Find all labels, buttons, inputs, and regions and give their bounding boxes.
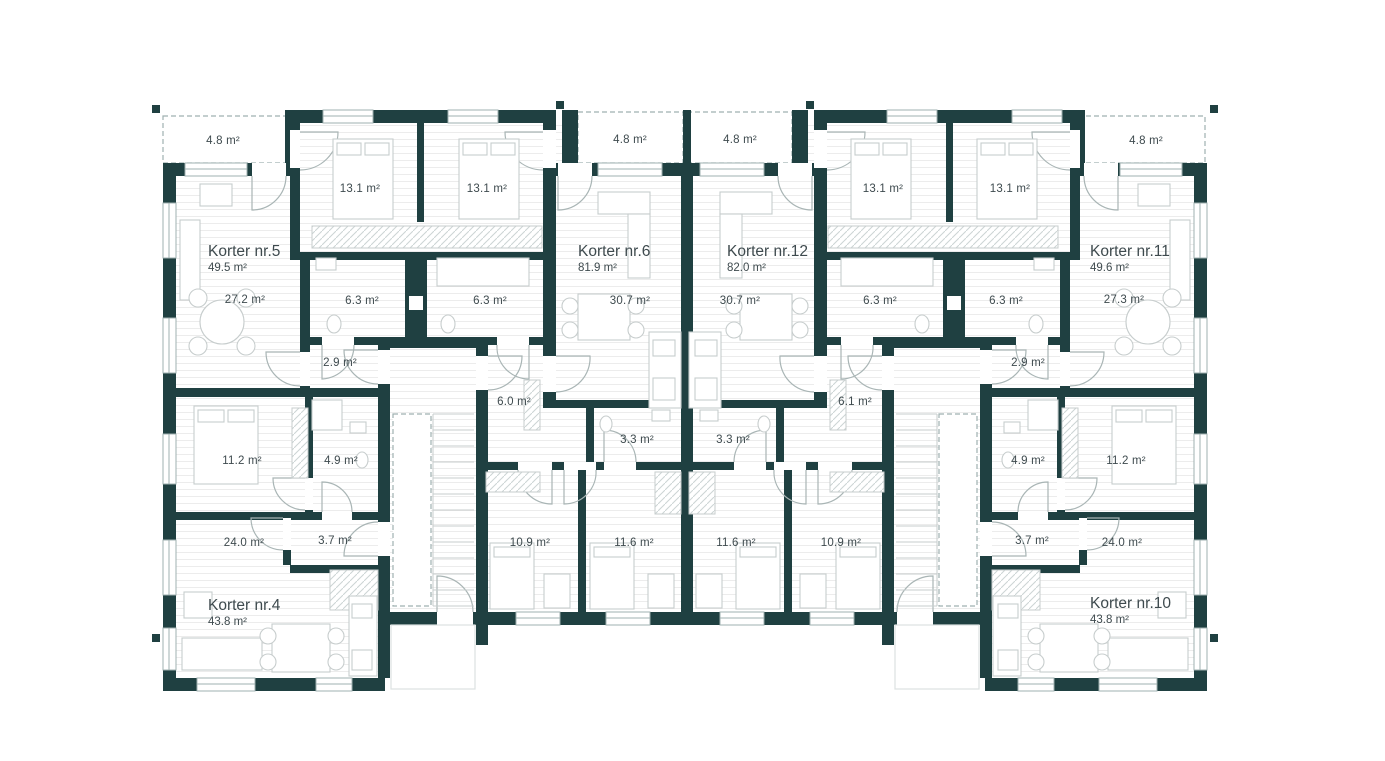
room-area-label: 2.9 m²	[1011, 357, 1045, 369]
apartment-area: 81.9 m²	[578, 261, 650, 275]
entrance-porch-left	[391, 625, 475, 689]
stair-landing-left	[393, 414, 431, 606]
apartment-area: 49.5 m²	[208, 261, 280, 275]
apartment-name: Korter nr.11	[1090, 243, 1170, 261]
room-area-label: 11.6 m²	[716, 537, 756, 549]
room-area-label: 30.7 m²	[720, 295, 760, 307]
entrance-porch-right	[895, 625, 979, 689]
room-area-label: 10.9 m²	[821, 537, 861, 549]
room-area-label: 11.2 m²	[1106, 455, 1146, 467]
room-area-label: 4.8 m²	[613, 134, 647, 146]
room-area-label: 2.9 m²	[323, 357, 357, 369]
apartment-area: 82.0 m²	[727, 261, 808, 275]
room-area-label: 24.0 m²	[1102, 537, 1142, 549]
apartment-label-k4: Korter nr.4 43.8 m²	[208, 597, 280, 629]
apartment-label-k11: Korter nr.11 49.6 m²	[1090, 243, 1170, 275]
room-area-label: 6.1 m²	[838, 396, 872, 408]
apartment-label-k10: Korter nr.10 43.8 m²	[1090, 595, 1171, 627]
room-area-label: 13.1 m²	[340, 183, 380, 195]
room-area-label: 6.0 m²	[497, 396, 531, 408]
apartment-name: Korter nr.4	[208, 597, 280, 615]
room-area-label: 4.8 m²	[1129, 135, 1163, 147]
apartment-name: Korter nr.6	[578, 243, 650, 261]
room-area-label: 6.3 m²	[863, 295, 897, 307]
room-area-label: 13.1 m²	[990, 183, 1030, 195]
room-area-label: 3.7 m²	[1015, 535, 1049, 547]
room-area-label: 6.3 m²	[989, 295, 1023, 307]
room-area-label: 11.6 m²	[614, 537, 654, 549]
room-area-label: 4.8 m²	[723, 134, 757, 146]
room-area-label: 4.9 m²	[324, 455, 358, 467]
apartment-name: Korter nr.10	[1090, 595, 1171, 613]
room-area-label: 3.3 m²	[620, 434, 654, 446]
room-area-label: 13.1 m²	[863, 183, 903, 195]
stair-landing-right	[939, 414, 977, 606]
room-area-label: 3.3 m²	[716, 434, 750, 446]
apartment-name: Korter nr.5	[208, 243, 280, 261]
room-area-label: 4.9 m²	[1011, 455, 1045, 467]
apartment-area: 49.6 m²	[1090, 261, 1170, 275]
room-area-label: 3.7 m²	[318, 535, 352, 547]
room-area-label: 27.2 m²	[225, 294, 265, 306]
room-area-label: 10.9 m²	[510, 537, 550, 549]
apartment-name: Korter nr.12	[727, 243, 808, 261]
room-area-label: 27.3 m²	[1104, 294, 1144, 306]
room-area-label: 11.2 m²	[222, 455, 262, 467]
room-area-label: 30.7 m²	[610, 295, 650, 307]
apartment-label-k6: Korter nr.6 81.9 m²	[578, 243, 650, 275]
apartment-label-k5: Korter nr.5 49.5 m²	[208, 243, 280, 275]
floor-plan-drawing	[0, 0, 1385, 761]
floor-plan: Korter nr.5 49.5 m² Korter nr.6 81.9 m² …	[0, 0, 1385, 761]
apartment-area: 43.8 m²	[1090, 613, 1171, 627]
room-area-label: 4.8 m²	[206, 135, 240, 147]
apartment-label-k12: Korter nr.12 82.0 m²	[727, 243, 808, 275]
room-area-label: 24.0 m²	[224, 537, 264, 549]
apartment-area: 43.8 m²	[208, 615, 280, 629]
room-area-label: 6.3 m²	[345, 295, 379, 307]
room-area-label: 6.3 m²	[473, 295, 507, 307]
room-area-label: 13.1 m²	[467, 183, 507, 195]
